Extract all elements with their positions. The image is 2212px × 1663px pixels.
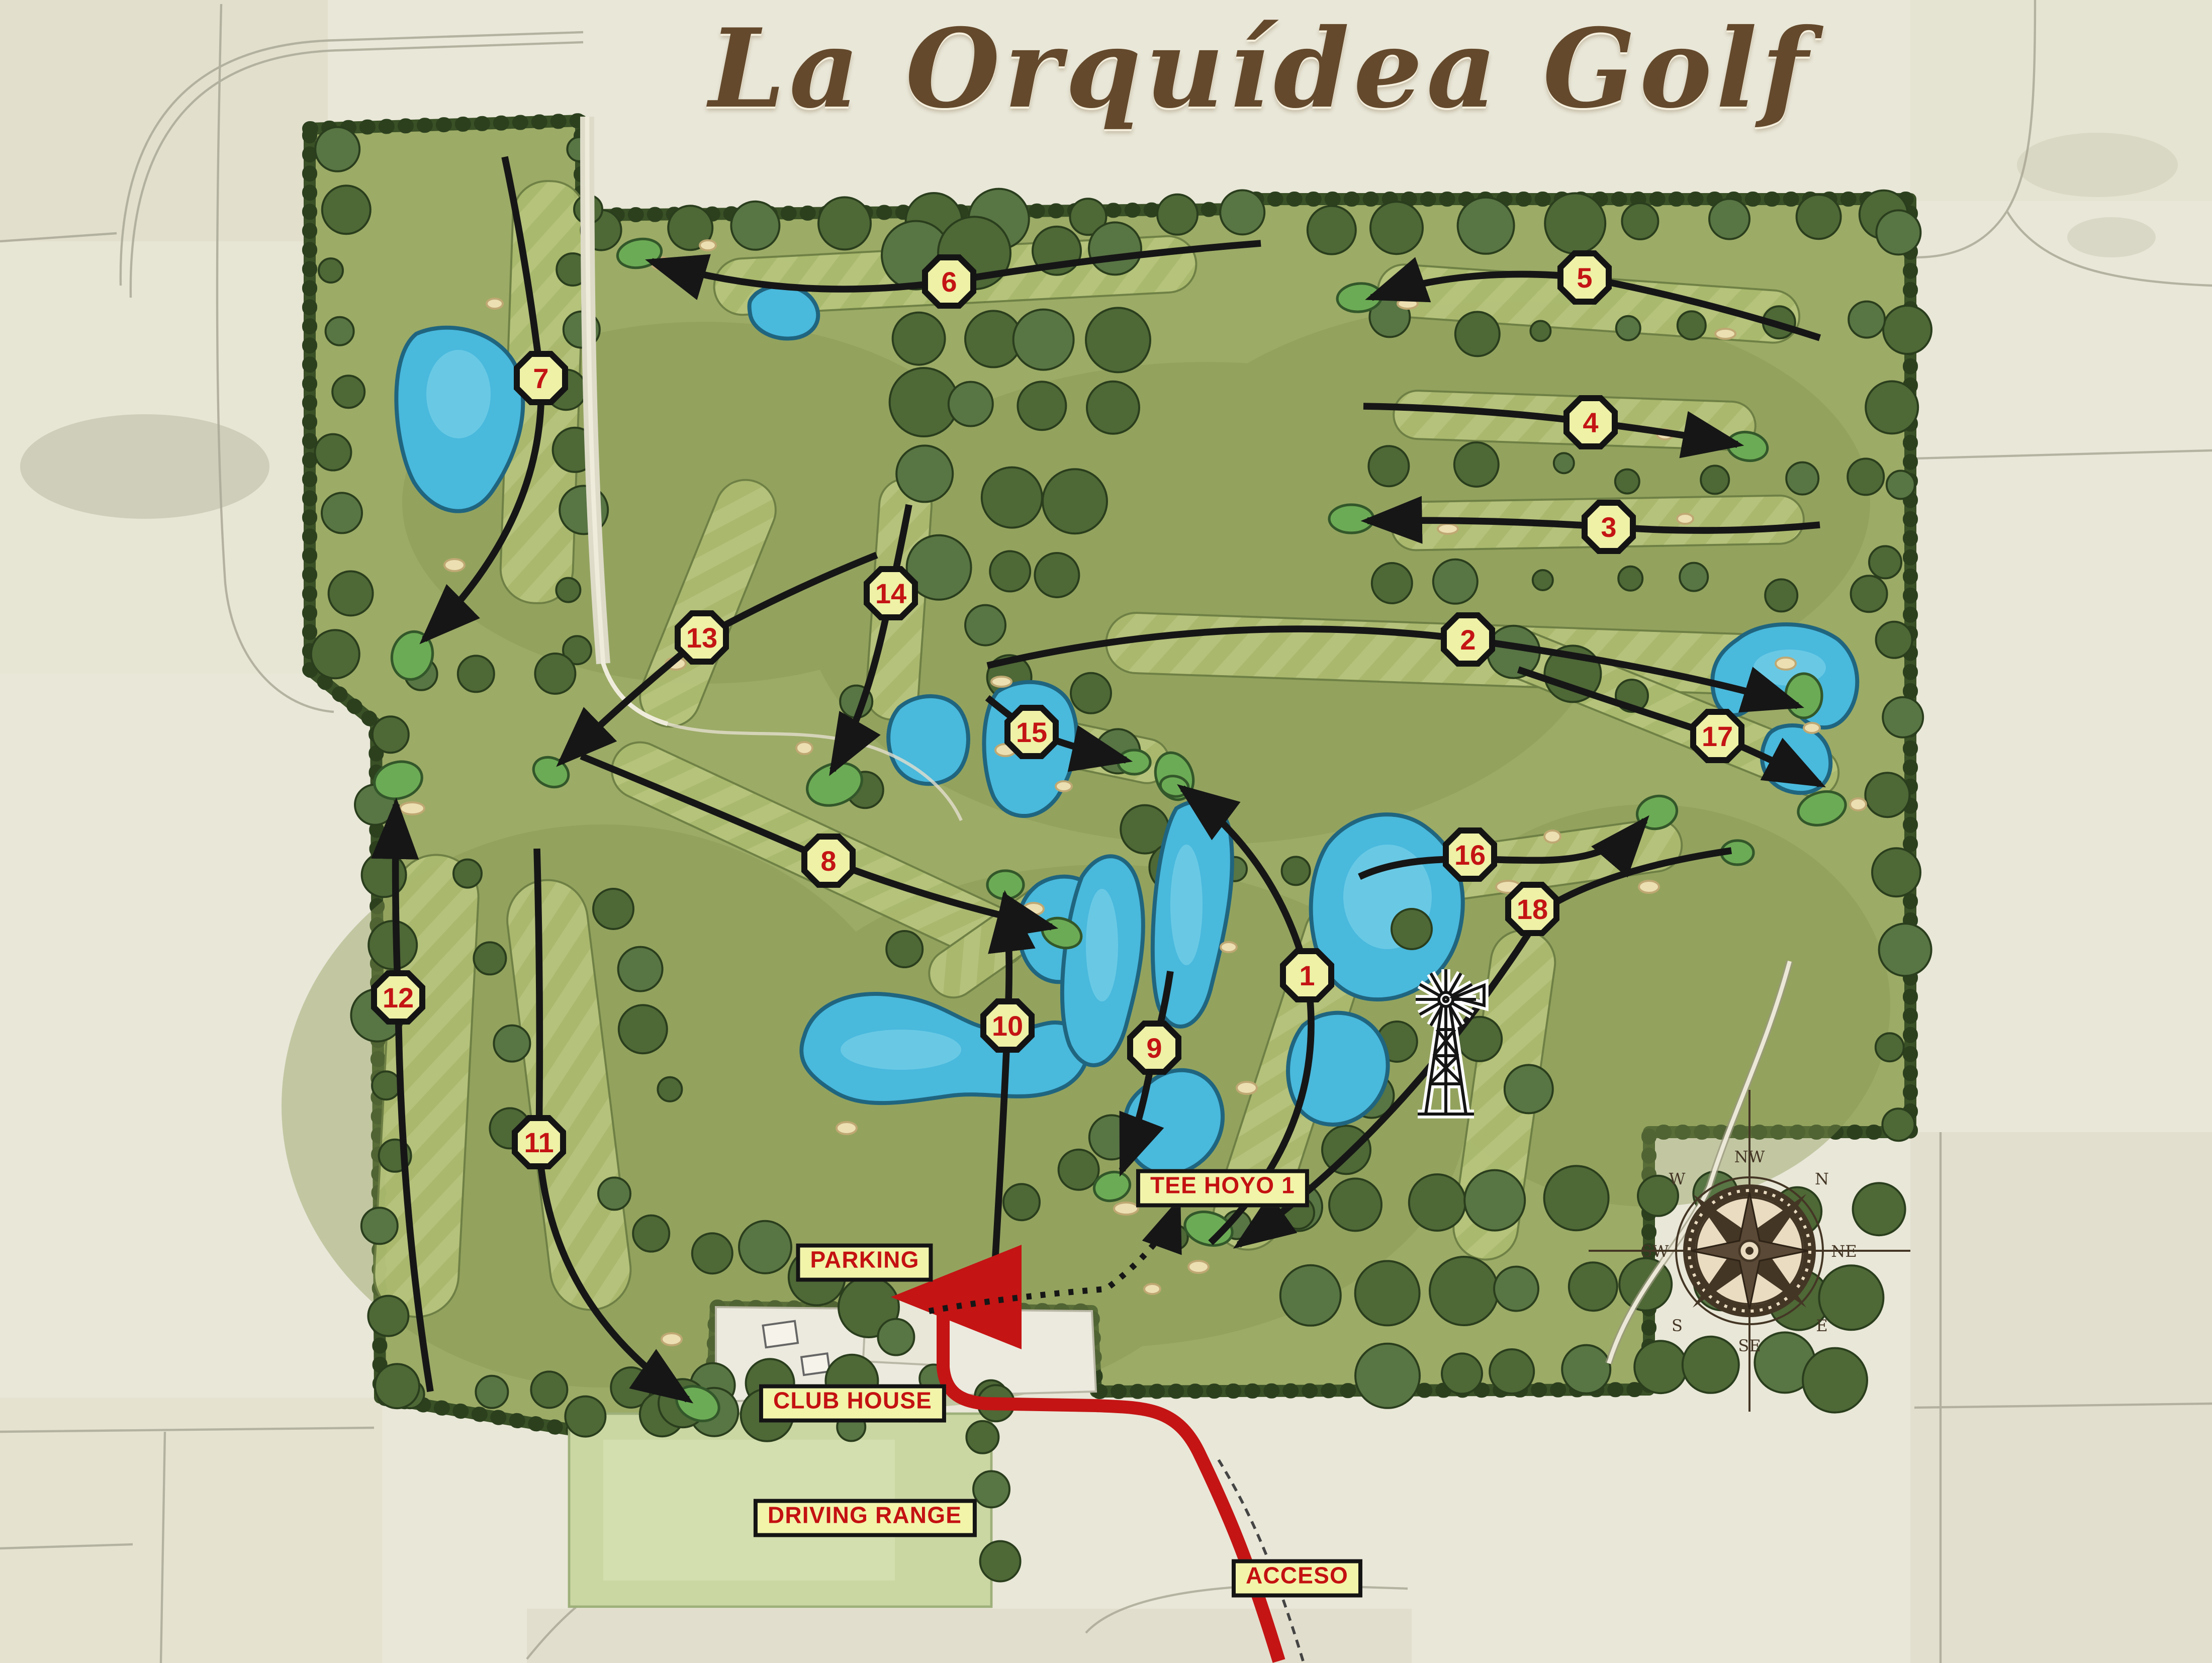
tree-icon — [1544, 1166, 1609, 1230]
hole-number: 12 — [383, 982, 414, 1013]
tree-icon — [619, 1005, 667, 1053]
tree-icon — [1562, 1345, 1610, 1394]
tree-icon — [1680, 563, 1708, 591]
tree-icon — [1554, 453, 1574, 473]
tree-icon — [593, 889, 633, 929]
tree-icon — [982, 468, 1042, 528]
tree-icon — [1035, 553, 1079, 597]
tree-icon — [1709, 199, 1749, 239]
tree-icon — [362, 853, 406, 897]
tree-icon — [1087, 382, 1139, 434]
tree-icon — [1797, 195, 1841, 239]
tree-icon — [1678, 311, 1706, 339]
tree-icon — [990, 551, 1030, 591]
tree-icon — [1490, 1349, 1534, 1394]
tree-icon — [319, 258, 343, 283]
hole-marker-2: 2 — [1444, 615, 1492, 664]
course-map-canvas: NW N NE E SE S SW W 12345678910111213141… — [0, 0, 2212, 1663]
hole-marker-5: 5 — [1560, 253, 1609, 302]
hole-marker-11: 11 — [515, 1118, 563, 1166]
hole-number: 2 — [1460, 624, 1476, 656]
tree-icon — [949, 382, 993, 426]
tree-icon — [886, 931, 923, 967]
tree-icon — [1853, 1183, 1905, 1235]
tree-icon — [598, 1177, 630, 1210]
tree-icon — [1071, 673, 1111, 713]
hole-number: 10 — [992, 1010, 1023, 1042]
tree-icon — [361, 1208, 398, 1244]
tree-icon — [315, 127, 359, 171]
hole-number: 3 — [1601, 511, 1616, 543]
tree-icon — [1765, 579, 1797, 611]
tree-icon — [1819, 1265, 1883, 1330]
label-driving-range: DRIVING RANGE — [754, 1499, 976, 1538]
compass-sw: SW — [1641, 1242, 1669, 1261]
hole-marker-3: 3 — [1585, 503, 1633, 551]
tree-icon — [1157, 195, 1197, 235]
tree-icon — [531, 1371, 567, 1408]
tree-icon — [1329, 1178, 1381, 1231]
hole-marker-6: 6 — [925, 257, 973, 306]
tree-icon — [878, 1319, 914, 1355]
tree-icon — [1464, 1170, 1525, 1231]
tree-icon — [1872, 848, 1920, 896]
hole-number: 18 — [1517, 893, 1548, 925]
hole-marker-8: 8 — [804, 837, 853, 885]
hole-number: 17 — [1702, 720, 1733, 752]
hole-marker-18: 18 — [1508, 885, 1556, 933]
compass-nw: NW — [1734, 1147, 1765, 1166]
tree-icon — [658, 1077, 682, 1101]
tree-icon — [1616, 316, 1640, 340]
tree-icon — [1322, 1126, 1370, 1174]
tree-icon — [1458, 198, 1514, 254]
tree-icon — [326, 317, 354, 345]
tree-icon — [322, 493, 362, 533]
tree-icon — [1043, 469, 1107, 533]
tree-icon — [1683, 1337, 1739, 1393]
label-acceso: ACCESO — [1232, 1559, 1362, 1598]
tree-icon — [1430, 1257, 1498, 1325]
compass-se: SE — [1738, 1336, 1761, 1355]
compass-ne: NE — [1831, 1242, 1857, 1261]
tree-icon — [1368, 446, 1409, 486]
label-parking: PARKING — [796, 1244, 933, 1282]
tree-icon — [1505, 1065, 1553, 1113]
tree-icon — [1086, 308, 1150, 372]
tree-icon — [368, 1296, 408, 1336]
tree-icon — [458, 656, 494, 692]
tree-icon — [474, 942, 506, 974]
tree-icon — [332, 376, 364, 408]
tree-icon — [1409, 1174, 1465, 1231]
tree-icon — [1530, 321, 1550, 341]
tree-icon — [372, 1071, 400, 1099]
tree-icon — [1372, 563, 1412, 603]
hole-number: 8 — [820, 845, 836, 877]
tree-icon — [1533, 570, 1553, 590]
hole-marker-1: 1 — [1283, 951, 1331, 999]
tree-icon — [1876, 1033, 1904, 1061]
tree-icon — [1013, 310, 1074, 370]
hole-marker-4: 4 — [1566, 398, 1615, 446]
tree-icon — [1851, 576, 1887, 612]
compass-s: S — [1672, 1316, 1683, 1335]
tree-icon — [1280, 1265, 1341, 1326]
tree-icon — [893, 313, 945, 365]
hole-number: 16 — [1454, 839, 1486, 871]
tree-icon — [1869, 546, 1901, 578]
hole-marker-15: 15 — [1007, 708, 1056, 756]
tree-icon — [618, 947, 663, 991]
tree-icon — [453, 860, 482, 888]
hole-marker-17: 17 — [1693, 712, 1741, 760]
tree-icon — [476, 1376, 508, 1408]
tree-icon — [1003, 1184, 1040, 1220]
tree-icon — [633, 1216, 669, 1252]
tree-icon — [1454, 442, 1499, 487]
tree-icon — [1618, 567, 1642, 591]
tree-icon — [1282, 857, 1310, 885]
hole-marker-10: 10 — [983, 1001, 1032, 1050]
tree-icon — [1883, 697, 1923, 737]
hole-number: 11 — [524, 1127, 554, 1158]
tree-icon — [1442, 1353, 1482, 1394]
tree-icon — [556, 578, 580, 602]
tree-icon — [980, 1541, 1021, 1582]
tree-icon — [1355, 1344, 1420, 1408]
tree-icon — [1848, 458, 1884, 495]
hole-number: 7 — [533, 362, 548, 394]
tree-icon — [1865, 773, 1909, 817]
golf-course-map: NW N NE E SE S SW W 12345678910111213141… — [0, 0, 2212, 1663]
tree-icon — [1370, 202, 1423, 254]
tree-icon — [315, 434, 351, 471]
compass-n: N — [1815, 1169, 1829, 1188]
hole-marker-12: 12 — [374, 973, 422, 1022]
tree-icon — [1355, 1261, 1420, 1325]
tree-icon — [739, 1221, 791, 1273]
tree-icon — [1866, 381, 1918, 433]
hole-number: 4 — [1583, 407, 1598, 438]
tree-icon — [1622, 203, 1658, 239]
tree-icon — [1701, 466, 1729, 494]
tree-icon — [818, 197, 871, 249]
tree-icon — [1879, 923, 1931, 976]
tree-icon — [1876, 210, 1920, 254]
tree-icon — [375, 1364, 419, 1408]
tree-icon — [965, 605, 1005, 645]
tree-icon — [1494, 1267, 1538, 1311]
tree-icon — [1220, 190, 1264, 234]
tree-icon — [1876, 622, 1912, 658]
hole-marker-13: 13 — [678, 613, 726, 662]
tree-icon — [1887, 471, 1915, 499]
hole-number: 15 — [1016, 716, 1047, 748]
tree-icon — [1018, 382, 1066, 430]
tree-icon — [1545, 193, 1605, 253]
tree-icon — [329, 571, 373, 615]
tree-icon — [1569, 1262, 1617, 1311]
tree-icon — [1786, 463, 1818, 495]
tree-icon — [322, 186, 371, 234]
map-title: La Orquídea Golf — [709, 4, 1812, 133]
tree-icon — [1059, 1150, 1099, 1190]
label-tee-hoyo-1: TEE HOYO 1 — [1136, 1169, 1309, 1208]
tree-icon — [1455, 312, 1500, 356]
hole-number: 9 — [1146, 1032, 1162, 1064]
hole-marker-7: 7 — [517, 354, 565, 402]
hole-marker-14: 14 — [867, 569, 915, 617]
hole-marker-9: 9 — [1130, 1024, 1178, 1072]
hole-number: 5 — [1577, 262, 1592, 294]
tree-icon — [311, 630, 359, 678]
tree-icon — [692, 1233, 732, 1273]
compass-e: E — [1816, 1316, 1827, 1335]
tree-icon — [973, 1471, 1009, 1507]
tree-icon — [1882, 1108, 1914, 1141]
tree-icon — [1089, 222, 1141, 274]
tree-icon — [373, 716, 409, 753]
tree-icon — [1433, 560, 1478, 604]
compass-w: W — [1669, 1169, 1686, 1188]
tree-icon — [1883, 306, 1931, 354]
tree-icon — [1615, 470, 1639, 494]
tree-icon — [1849, 302, 1885, 338]
tree-icon — [731, 202, 779, 250]
tree-icon — [535, 654, 575, 694]
label-club-house: CLUB HOUSE — [759, 1384, 946, 1423]
tree-icon — [494, 1026, 530, 1062]
hole-number: 14 — [875, 578, 906, 609]
tree-icon — [565, 1397, 605, 1437]
hole-marker-16: 16 — [1446, 830, 1494, 879]
tree-icon — [896, 445, 953, 502]
tree-icon — [1803, 1348, 1867, 1413]
hole-number: 6 — [941, 266, 957, 298]
hole-number: 1 — [1299, 960, 1315, 991]
tree-icon — [966, 1421, 998, 1453]
tree-icon — [1634, 1341, 1687, 1393]
tree-icon — [1308, 206, 1356, 254]
hole-number: 13 — [686, 622, 717, 654]
